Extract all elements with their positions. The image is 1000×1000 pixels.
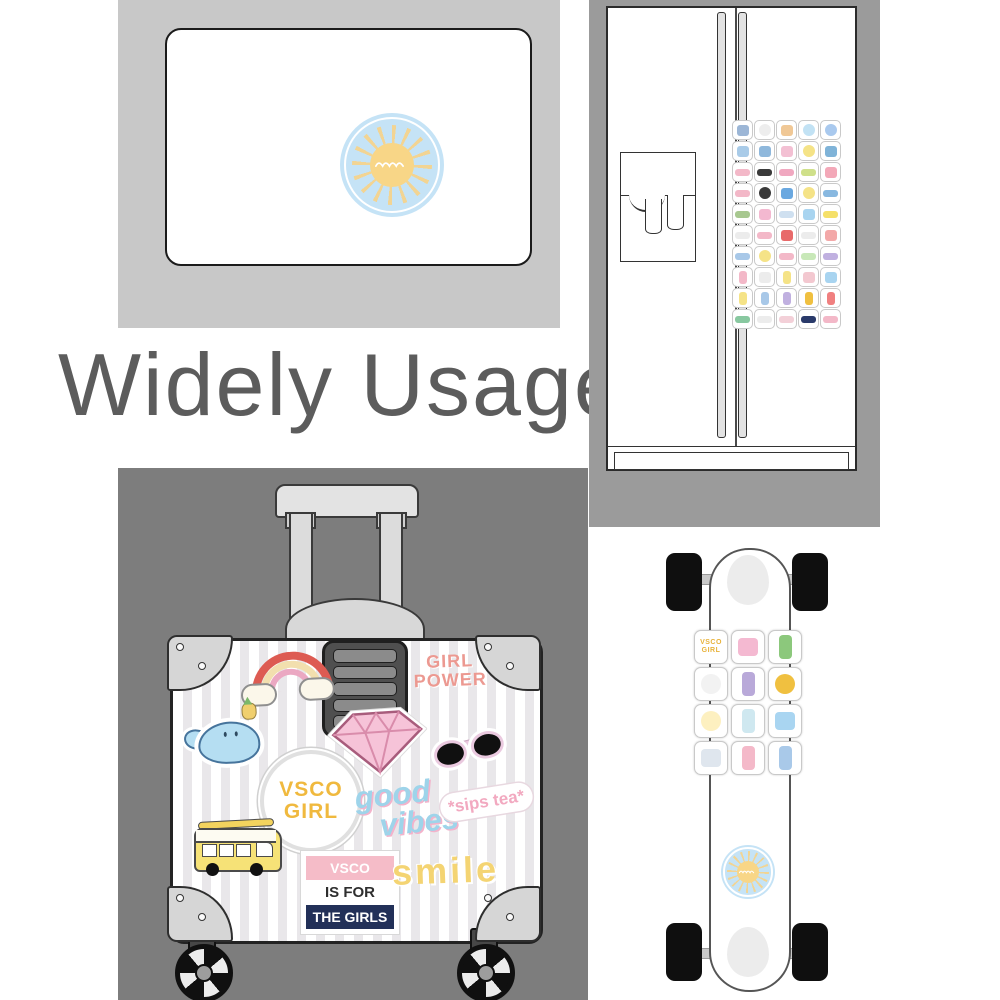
suitcase-wheel — [175, 944, 233, 1000]
sticker-lemon-half — [798, 183, 819, 203]
sticker-script-text — [798, 225, 819, 245]
water-dispenser — [620, 152, 696, 262]
sticker-camera — [732, 141, 753, 161]
sticker-dog — [798, 267, 819, 287]
dispenser-nozzle — [667, 195, 684, 230]
dispenser-nozzle — [645, 199, 662, 234]
laptop-lid — [165, 28, 532, 266]
fridge-scene — [589, 0, 880, 527]
refrigerator — [606, 6, 857, 471]
skateboard-sticker-cluster: VSCO GIRL — [690, 630, 806, 775]
laptop-scene — [118, 0, 560, 328]
sticker-sun-circle — [798, 120, 819, 140]
sticker-sneaker — [776, 204, 797, 224]
sticker-girl-power: GIRL POWER — [404, 650, 495, 691]
suitcase-wheel — [457, 944, 515, 1000]
sticker-peace-hand — [754, 267, 775, 287]
sticker-camper-bus — [192, 818, 284, 878]
sticker-jeep — [694, 741, 728, 775]
sticker-white-text — [754, 309, 775, 329]
sticker-wave-circle — [754, 120, 775, 140]
wave-icon — [375, 161, 409, 170]
sticker-backpack — [731, 630, 765, 664]
fridge-left-handle — [717, 12, 726, 438]
sticker-lemonade — [776, 267, 797, 287]
sticker-jeep — [732, 120, 753, 140]
sticker-pineapple — [732, 288, 753, 308]
sticker-speech-text — [732, 225, 753, 245]
truck-baseplate — [727, 555, 769, 605]
sticker-smile: smile — [391, 848, 499, 894]
truck-baseplate — [727, 927, 769, 977]
sticker-happy-text — [732, 183, 753, 203]
sticker-diamond — [776, 141, 797, 161]
sticker-fries — [820, 225, 841, 245]
suitcase-scene: GIRL POWER VSCO GIRL good vibes — [118, 468, 588, 1000]
sticker-sunglasses — [754, 162, 775, 182]
sun-sticker — [340, 113, 444, 217]
sticker-toothpaste — [820, 288, 841, 308]
sticker-daisy-sun — [798, 141, 819, 161]
sticker-jellyfish — [820, 267, 841, 287]
sticker-whale — [798, 204, 819, 224]
sticker-daisy — [694, 704, 728, 738]
skateboard-scene: VSCO GIRL — [650, 545, 850, 995]
sticker-watermelon — [820, 162, 841, 182]
sticker-blue-bottle — [768, 741, 802, 775]
sun-core — [370, 143, 414, 187]
sticker-egg — [754, 246, 775, 266]
sticker-whale — [181, 710, 268, 768]
skateboard-wheel — [666, 923, 702, 981]
sticker-wave-text — [732, 246, 753, 266]
sticker-rainbow — [241, 644, 332, 707]
sticker-purple-bottle — [776, 288, 797, 308]
sticker-sunflower-jar — [798, 288, 819, 308]
sticker-tubular-text — [754, 225, 775, 245]
sticker-vans-wave — [820, 183, 841, 203]
wave-icon — [739, 870, 757, 874]
sticker-backpack — [754, 204, 775, 224]
sticker-donut — [820, 120, 841, 140]
sticker-blue-bottle — [754, 288, 775, 308]
sticker-butterfly — [776, 183, 797, 203]
product-usage-collage: Widely Usage — [0, 0, 1000, 1000]
sticker-pink-text — [776, 246, 797, 266]
sticker-camper-bus — [820, 204, 841, 224]
sticker-boba-drink — [732, 267, 753, 287]
sticker-wave-circle — [694, 667, 728, 701]
sticker-cactus-pot — [768, 630, 802, 664]
sticker-sandal — [732, 204, 753, 224]
sticker-vsco-text — [820, 246, 841, 266]
skateboard-wheel — [792, 923, 828, 981]
sticker-text-collage — [776, 162, 797, 182]
sticker-polaroid — [776, 120, 797, 140]
skateboard-wheel — [792, 553, 828, 611]
sticker-pink-text-2 — [776, 309, 797, 329]
sticker-lime-text — [798, 162, 819, 182]
sticker-sea-turtle — [820, 141, 841, 161]
corner-guard — [475, 886, 541, 942]
sticker-pink-text-3 — [820, 309, 841, 329]
sun-sticker — [721, 845, 775, 899]
sticker-vsco-is-for-the-girls: VSCO IS FOR THE GIRLS — [300, 850, 400, 935]
fridge-kickplate — [614, 452, 849, 470]
sticker-vsco-girl-circle: VSCO GIRL — [694, 630, 728, 664]
skateboard-wheel — [666, 553, 702, 611]
sticker-vsco-girls-text — [732, 162, 753, 182]
sticker-purple-bottle — [731, 667, 765, 701]
sticker-navy-text — [798, 309, 819, 329]
sticker-rainbow — [776, 225, 797, 245]
fridge-door-bottom — [608, 446, 855, 447]
sticker-bird — [754, 141, 775, 161]
sticker-plant-jar — [731, 704, 765, 738]
sticker-pink-drink — [731, 741, 765, 775]
fridge-sticker-grid — [732, 120, 850, 329]
sticker-sunflower — [768, 667, 802, 701]
sticker-eye-lashes — [754, 183, 775, 203]
pineapple — [241, 702, 257, 720]
sticker-green-text — [798, 246, 819, 266]
sticker-skateboard — [732, 309, 753, 329]
cloud — [298, 676, 335, 701]
page-title: Widely Usage — [58, 334, 625, 436]
sticker-jellyfish — [768, 704, 802, 738]
